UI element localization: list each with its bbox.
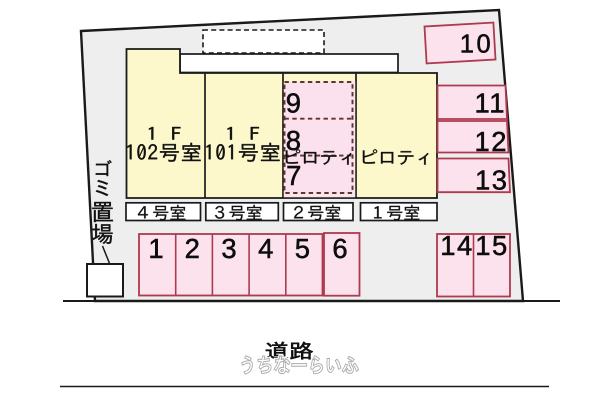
svg-text:13: 13 — [475, 164, 508, 195]
svg-text:5: 5 — [295, 233, 310, 264]
svg-text:2: 2 — [185, 233, 200, 264]
svg-text:11: 11 — [475, 88, 506, 119]
svg-text:7: 7 — [286, 160, 301, 191]
svg-text:14: 14 — [440, 230, 473, 261]
svg-text:6: 6 — [332, 233, 347, 264]
svg-text:15: 15 — [475, 230, 508, 261]
svg-text:1: 1 — [148, 233, 163, 264]
svg-text:8: 8 — [286, 125, 301, 156]
svg-text:3: 3 — [221, 233, 236, 264]
svg-text:12: 12 — [475, 126, 508, 157]
svg-text:10: 10 — [460, 31, 493, 59]
svg-text:9: 9 — [286, 88, 301, 119]
svg-text:4: 4 — [258, 233, 273, 264]
